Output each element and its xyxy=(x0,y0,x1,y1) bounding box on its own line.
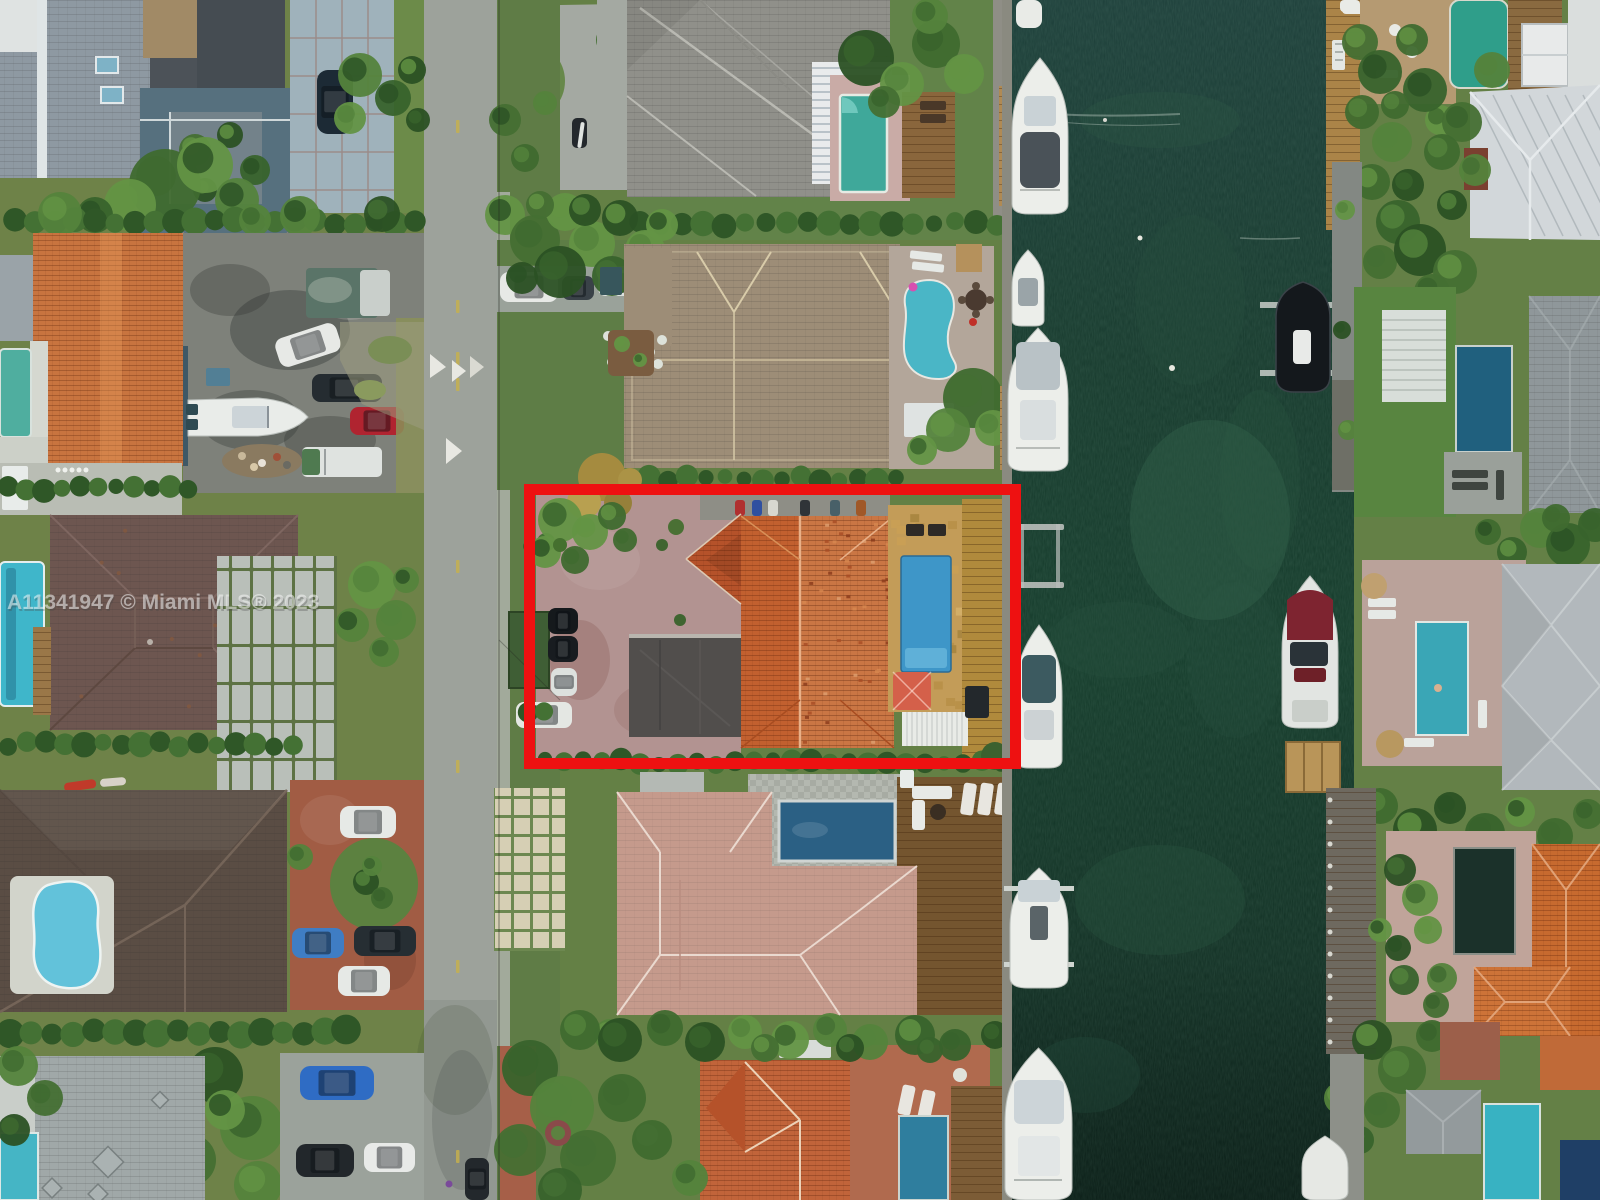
svg-text:A11341947 © Miami MLS® 2023: A11341947 © Miami MLS® 2023 xyxy=(7,591,319,614)
